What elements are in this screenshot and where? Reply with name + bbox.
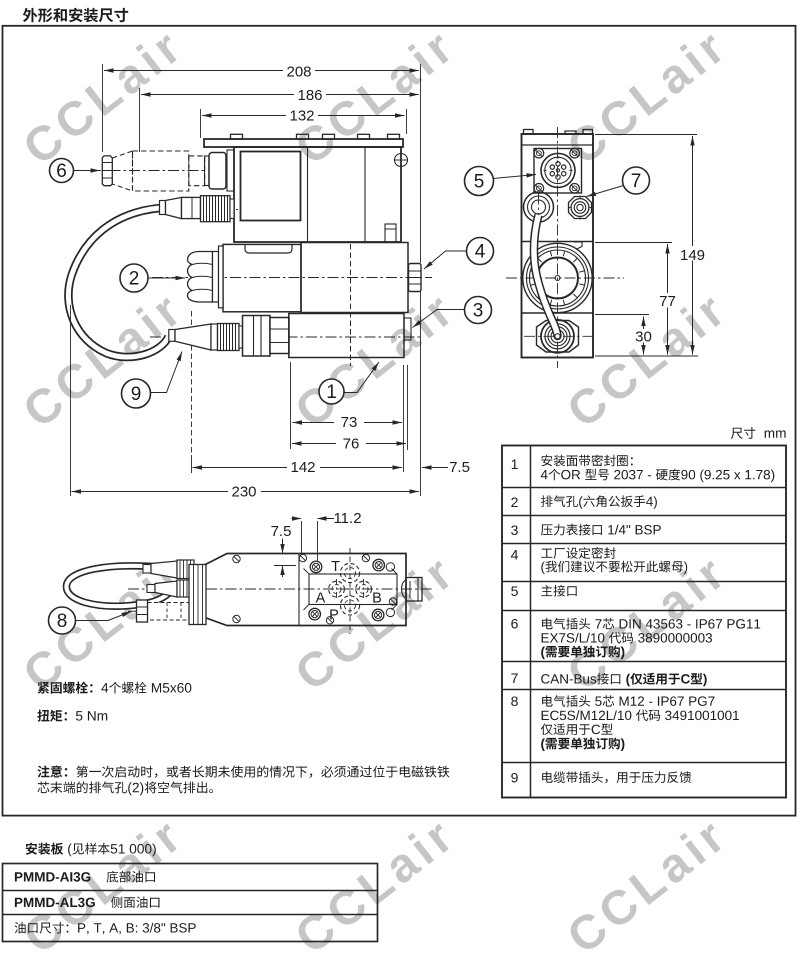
svg-text:3: 3	[511, 522, 519, 538]
svg-text:P: P	[329, 608, 339, 624]
svg-text:7: 7	[631, 171, 642, 192]
svg-text:30: 30	[635, 328, 652, 345]
svg-text:T: T	[331, 559, 340, 575]
svg-text:2: 2	[511, 494, 519, 510]
svg-text:4: 4	[475, 242, 486, 263]
svg-text:B: B	[372, 591, 382, 607]
svg-text:7: 7	[511, 670, 519, 686]
svg-text:76: 76	[343, 435, 360, 452]
svg-text:77: 77	[659, 293, 676, 310]
svg-text:7.5: 7.5	[271, 523, 292, 540]
svg-text:2: 2	[129, 269, 140, 290]
svg-text:7.5: 7.5	[449, 459, 470, 476]
svg-text:3: 3	[473, 301, 484, 322]
svg-text:8: 8	[57, 611, 68, 632]
svg-text:5: 5	[511, 583, 519, 599]
svg-text:5: 5	[474, 172, 485, 193]
svg-text:149: 149	[680, 247, 705, 264]
svg-text:1: 1	[511, 456, 519, 472]
svg-text:208: 208	[286, 64, 311, 81]
svg-text:142: 142	[290, 459, 315, 476]
svg-text:9: 9	[131, 384, 142, 405]
svg-text:4: 4	[511, 547, 519, 563]
svg-text:6: 6	[56, 161, 67, 182]
svg-text:186: 186	[297, 87, 322, 104]
svg-text:A: A	[316, 591, 326, 607]
svg-text:11.2: 11.2	[333, 510, 361, 527]
svg-text:1: 1	[326, 382, 337, 403]
svg-text:230: 230	[231, 483, 256, 500]
svg-text:132: 132	[289, 108, 314, 125]
svg-text:9: 9	[511, 769, 519, 785]
svg-text:8: 8	[511, 693, 519, 709]
svg-text:6: 6	[511, 616, 519, 632]
svg-text:73: 73	[341, 414, 358, 431]
